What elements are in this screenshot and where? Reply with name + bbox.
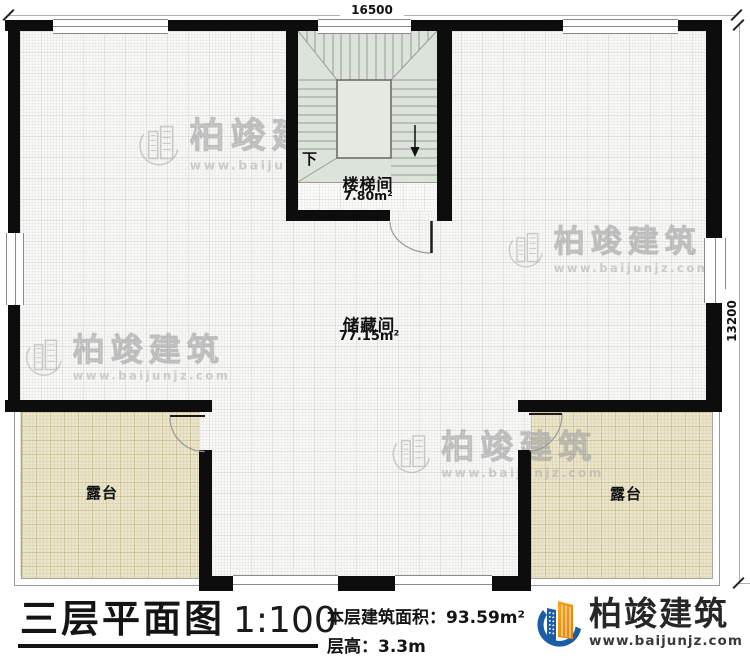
floor-area-value: 93.59m² <box>446 608 525 628</box>
door-terrace-left <box>170 416 205 452</box>
dimension-top-label: 16500 <box>340 3 404 17</box>
floor-area-label: 本层建筑面积： <box>327 608 446 628</box>
company-logo-icon <box>530 593 584 653</box>
room-label-terrace-right: 露台 <box>586 483 666 504</box>
door-symbols <box>0 0 750 595</box>
company-name: 柏竣建筑 <box>589 597 729 630</box>
company-website: www.baijunjz.com <box>589 633 743 649</box>
floor-height-text: 层高：3.3m <box>327 632 426 657</box>
door-stair-room <box>390 221 432 253</box>
floor-height-value: 3.3m <box>378 637 426 657</box>
plan-canvas: 柏竣建筑 www.baijunjz.com 柏竣建筑 www.baijunjz.… <box>0 0 750 595</box>
door-terrace-right <box>529 414 562 451</box>
floor-plan-page: { "plan": { "dimensions": { "width_mm": … <box>0 0 750 660</box>
title-block: 三层平面图 1:100 本层建筑面积：93.59m² 层高：3.3m 柏竣建筑 … <box>0 591 750 660</box>
room-area-staircase: 7.80m² <box>303 188 433 203</box>
dimension-right-line <box>739 25 740 583</box>
room-area-storage: 77.15m² <box>304 329 434 344</box>
floor-height-label: 层高： <box>327 637 378 657</box>
floor-area-text: 本层建筑面积：93.59m² <box>327 603 525 628</box>
dimension-right-label: 13200 <box>725 289 739 353</box>
stair-down-label: 下 <box>299 148 321 169</box>
room-label-terrace-left: 露台 <box>62 482 142 503</box>
title-underline <box>18 644 318 648</box>
floor-plan-title: 三层平面图 <box>20 600 225 638</box>
dimension-right-ext <box>739 583 750 584</box>
drawing-scale: 1:100 <box>233 603 337 639</box>
